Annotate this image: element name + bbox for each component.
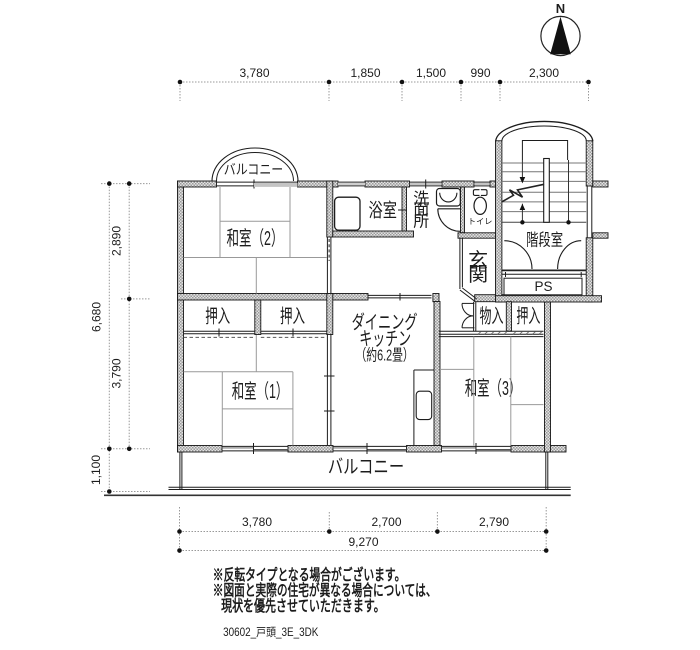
svg-text:バルコニー: バルコニー bbox=[328, 457, 404, 478]
svg-text:3,790: 3,790 bbox=[110, 358, 124, 388]
svg-text:6,680: 6,680 bbox=[90, 302, 104, 332]
svg-text:関: 関 bbox=[468, 264, 488, 286]
svg-text:現状を優先させていただきます。: 現状を優先させていただきます。 bbox=[221, 596, 385, 615]
svg-text:和室（1）: 和室（1） bbox=[232, 380, 289, 403]
svg-text:30602_戸頭_3E_3DK: 30602_戸頭_3E_3DK bbox=[223, 626, 319, 639]
svg-text:PS: PS bbox=[534, 279, 552, 294]
svg-text:1,100: 1,100 bbox=[89, 455, 103, 485]
svg-text:トイレ: トイレ bbox=[468, 217, 493, 226]
svg-text:押入: 押入 bbox=[280, 305, 305, 327]
svg-text:バルコニー: バルコニー bbox=[224, 162, 284, 178]
svg-text:990: 990 bbox=[470, 66, 490, 80]
svg-text:2,890: 2,890 bbox=[110, 226, 124, 256]
svg-text:和室（2）: 和室（2） bbox=[227, 227, 284, 250]
svg-text:N: N bbox=[556, 1, 565, 16]
svg-text:1,500: 1,500 bbox=[416, 66, 446, 80]
svg-text:9,270: 9,270 bbox=[348, 535, 378, 549]
svg-text:2,790: 2,790 bbox=[479, 515, 509, 529]
svg-text:2,700: 2,700 bbox=[371, 515, 401, 529]
svg-text:和室（3）: 和室（3） bbox=[465, 377, 522, 400]
svg-text:3,780: 3,780 bbox=[239, 66, 269, 80]
svg-text:浴室: 浴室 bbox=[369, 199, 398, 221]
svg-text:物入: 物入 bbox=[480, 306, 504, 328]
svg-text:押入: 押入 bbox=[205, 305, 230, 327]
svg-text:押入: 押入 bbox=[516, 306, 540, 328]
svg-text:2,300: 2,300 bbox=[529, 66, 559, 80]
svg-text:※図面と実際の住宅が異なる場合については、: ※図面と実際の住宅が異なる場合については、 bbox=[213, 581, 437, 600]
svg-text:所: 所 bbox=[413, 212, 429, 230]
svg-text:3,780: 3,780 bbox=[242, 515, 272, 529]
svg-text:※反転タイプとなる場合がございます。: ※反転タイプとなる場合がございます。 bbox=[213, 565, 406, 584]
svg-text:（約6.2畳）: （約6.2畳） bbox=[355, 347, 413, 365]
svg-text:階段室: 階段室 bbox=[526, 231, 563, 250]
svg-text:1,850: 1,850 bbox=[350, 66, 380, 80]
